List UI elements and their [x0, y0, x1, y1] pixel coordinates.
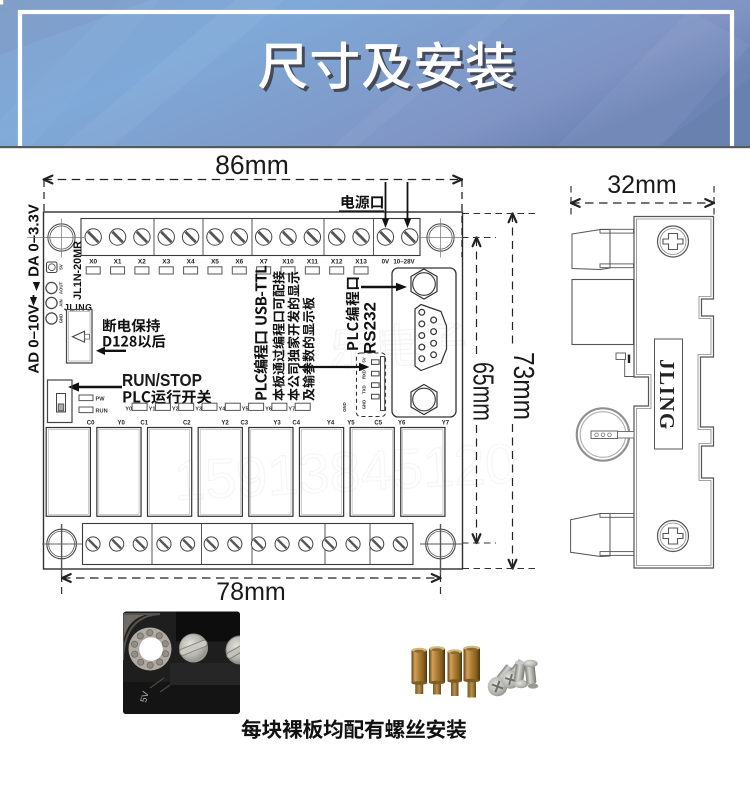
svg-text:C4: C4: [292, 420, 300, 426]
svg-text:X5: X5: [211, 259, 219, 266]
svg-text:AD 0–10V: AD 0–10V: [26, 304, 43, 373]
svg-text:65mm: 65mm: [467, 362, 499, 421]
svg-text:Y3: Y3: [195, 406, 202, 412]
svg-text:C3: C3: [240, 420, 248, 426]
svg-text:Y3: Y3: [273, 420, 281, 426]
svg-text:X4: X4: [187, 259, 195, 266]
svg-text:C0: C0: [87, 420, 95, 426]
svg-text:PW: PW: [96, 396, 106, 402]
svg-text:5V: 5V: [59, 264, 64, 270]
svg-text:0V: 0V: [382, 259, 390, 266]
svg-text:Y2: Y2: [221, 420, 229, 426]
svg-text:RUN: RUN: [96, 408, 108, 414]
svg-text:GND: GND: [342, 402, 347, 412]
svg-text:X1: X1: [114, 259, 122, 266]
svg-text:Y0: Y0: [118, 420, 126, 426]
svg-text:Y1: Y1: [149, 406, 156, 412]
svg-text:86mm: 86mm: [215, 150, 289, 180]
svg-text:C1: C1: [140, 420, 148, 426]
svg-text:C2: C2: [183, 420, 191, 426]
svg-text:X6: X6: [235, 259, 243, 266]
svg-text:RXD: RXD: [362, 370, 367, 379]
svg-text:X13: X13: [355, 259, 367, 266]
svg-text:GND: GND: [362, 400, 367, 410]
svg-text:Y2: Y2: [172, 406, 179, 412]
svg-text:32mm: 32mm: [607, 171, 676, 199]
svg-text:Y6: Y6: [265, 406, 272, 412]
svg-text:X10: X10: [282, 259, 294, 266]
svg-text:Y7: Y7: [442, 420, 450, 426]
svg-text:78mm: 78mm: [216, 578, 285, 606]
svg-text:X7: X7: [260, 259, 268, 266]
svg-text:Y4: Y4: [327, 420, 335, 426]
svg-text:TXD: TXD: [362, 385, 367, 394]
svg-text:10–28V: 10–28V: [393, 259, 415, 266]
svg-text:JL1N-20MR: JL1N-20MR: [72, 241, 84, 300]
svg-text:X0: X0: [89, 259, 97, 266]
svg-text:JLING: JLING: [655, 359, 679, 431]
svg-text:AOUT: AOUT: [59, 282, 64, 295]
svg-text:AIN: AIN: [59, 299, 64, 306]
svg-text:73mm: 73mm: [507, 352, 539, 420]
svg-text:Y5: Y5: [347, 420, 355, 426]
svg-text:Y6: Y6: [398, 420, 406, 426]
svg-text:X11: X11: [307, 259, 319, 266]
svg-text:X2: X2: [138, 259, 146, 266]
svg-text:X12: X12: [331, 259, 343, 266]
svg-text:X3: X3: [162, 259, 170, 266]
svg-text:Y0: Y0: [125, 406, 132, 412]
svg-text:C5: C5: [374, 420, 382, 426]
svg-text:RS232: RS232: [361, 302, 380, 354]
svg-text:Y7: Y7: [288, 406, 295, 412]
svg-text:GND: GND: [59, 314, 64, 324]
svg-text:Y5: Y5: [242, 406, 249, 412]
svg-text:5V: 5V: [362, 357, 367, 362]
svg-text:DA 0–3.3V: DA 0–3.3V: [26, 204, 43, 277]
svg-text:JLING: JLING: [64, 303, 92, 313]
svg-text:RUN/STOP: RUN/STOP: [122, 370, 202, 390]
